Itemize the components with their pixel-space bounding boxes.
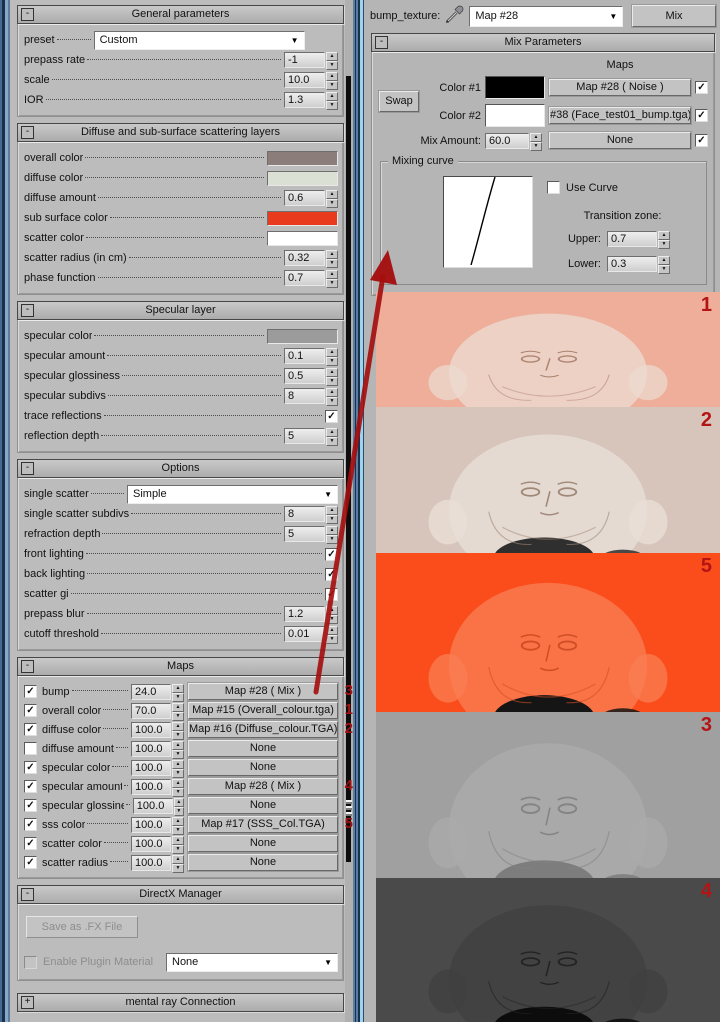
dropdown-value: Custom	[100, 34, 288, 46]
map-slot-row: ✓specular glossiness100.0▲▼None	[24, 796, 338, 815]
rollout-options: -Optionssingle scatterSimple▼single scat…	[17, 459, 344, 651]
color1-map-enable-checkbox[interactable]: ✓	[695, 81, 708, 94]
value-spinner[interactable]: ▲▼	[326, 72, 338, 88]
checkmark-icon: ✓	[26, 819, 34, 830]
value-field[interactable]: 8	[284, 388, 325, 404]
value-field[interactable]: 0.6	[284, 190, 325, 206]
eyedropper-icon[interactable]	[445, 5, 464, 27]
annotation-number: 2	[345, 720, 353, 737]
dotted-leader	[72, 689, 128, 691]
rollout-scrollbar-thumb[interactable]	[346, 76, 351, 862]
spinner-up-button[interactable]: ▲	[326, 270, 338, 279]
mixing-curve-group: Mixing curve Use Curve Transition zone:	[380, 161, 707, 285]
texture-annotation-number: 5	[701, 555, 712, 578]
checkmark-icon: ✓	[26, 857, 34, 868]
texture-annotation-number: 2	[701, 409, 712, 432]
spinner-down-button[interactable]: ▼	[172, 864, 184, 873]
mix-amount-label: Mix Amount:	[379, 135, 481, 147]
dotted-leader	[46, 98, 281, 100]
dotted-leader	[52, 78, 281, 80]
parameter-label: specular amount	[24, 350, 105, 362]
value-spinner[interactable]: ▲▼	[172, 684, 184, 700]
spinner-up-button[interactable]: ▲	[326, 250, 338, 259]
lower-spinner[interactable]: ▲▼	[658, 256, 670, 272]
dotted-leader	[116, 746, 128, 748]
dotted-leader	[126, 803, 130, 805]
value-spinner[interactable]: ▲▼	[172, 855, 184, 871]
value-spinner[interactable]: ▲▼	[172, 817, 184, 833]
spinner-down-button[interactable]: ▼	[326, 535, 338, 544]
value-spinner[interactable]: ▲▼	[326, 52, 338, 68]
color-swatch[interactable]	[267, 231, 338, 246]
color2-map-enable-checkbox[interactable]: ✓	[695, 109, 708, 122]
mix-amount-map-enable-checkbox[interactable]: ✓	[695, 134, 708, 147]
parameter-row: refraction depth5▲▼	[24, 524, 338, 544]
value-field[interactable]: -1	[284, 52, 325, 68]
map-amount-field[interactable]: 100.0	[131, 779, 171, 795]
lower-label: Lower:	[559, 258, 601, 270]
map-type-button[interactable]: Mix	[632, 5, 716, 27]
parameter-label: prepass blur	[24, 608, 85, 620]
enable-plugin-material-checkbox[interactable]	[24, 956, 37, 969]
spinner-down-button[interactable]: ▼	[326, 199, 338, 208]
parameter-row: scatter color	[24, 228, 338, 248]
dotted-leader	[104, 841, 128, 843]
map-button[interactable]: Map #28 ( Mix )	[188, 683, 338, 700]
map-enable-checkbox[interactable]: ✓	[24, 685, 37, 698]
collapse-icon[interactable]: -	[375, 36, 388, 49]
color2-map-button[interactable]: #38 (Face_test01_bump.tga)	[549, 107, 691, 124]
color2-swatch[interactable]	[485, 104, 545, 127]
parameter-label: phase function	[24, 272, 96, 284]
spinner-up-button[interactable]: ▲	[326, 348, 338, 357]
spinner-down-button[interactable]: ▼	[326, 615, 338, 624]
rollout-header[interactable]: -Maps	[17, 657, 344, 676]
dotted-leader	[131, 512, 281, 514]
checkmark-icon: ✓	[26, 705, 34, 716]
dotted-leader	[98, 276, 281, 278]
spinner-up-button[interactable]: ▲	[326, 190, 338, 199]
rollout-title: General parameters	[132, 8, 230, 20]
swap-colors-button[interactable]: Swap	[379, 91, 419, 112]
rollout-mix-parameters: - Mix Parameters Maps Swap Color #1 Map …	[371, 33, 715, 296]
value-field[interactable]: 0.32	[284, 250, 325, 266]
map-slot-label: diffuse amount	[42, 743, 114, 755]
map-button[interactable]: None	[188, 797, 338, 814]
spinner-up-button[interactable]: ▲	[530, 133, 542, 142]
mix-amount-spinner[interactable]: ▲▼	[530, 133, 542, 149]
map-amount-field[interactable]: 100.0	[131, 722, 171, 738]
rollout-header-directx[interactable]: - DirectX Manager	[17, 885, 344, 904]
map-enable-checkbox[interactable]	[24, 742, 37, 755]
spinner-up-button[interactable]: ▲	[326, 506, 338, 515]
spinner-up-button[interactable]: ▲	[172, 855, 184, 864]
maps-column-header: Maps	[549, 59, 691, 71]
dotted-leader	[103, 708, 128, 710]
map-button[interactable]: None	[188, 759, 338, 776]
spinner-up-button[interactable]: ▲	[172, 703, 184, 712]
mix-amount-control: 60.0 ▲▼	[485, 133, 545, 149]
spinner-up-button[interactable]: ▲	[326, 428, 338, 437]
color1-swatch[interactable]	[485, 76, 545, 99]
map-enable-checkbox[interactable]: ✓	[24, 761, 37, 774]
value-spinner[interactable]: ▲▼	[172, 779, 184, 795]
parameter-row: specular color	[24, 326, 338, 346]
spinner-down-button[interactable]: ▼	[658, 240, 670, 249]
spinner-down-button[interactable]: ▼	[658, 265, 670, 274]
parameter-sections: -General parameterspresetCustom▼prepass …	[17, 5, 344, 879]
spinner-up-button[interactable]: ▲	[326, 388, 338, 397]
value-spinner[interactable]: ▲▼	[172, 703, 184, 719]
parameter-dropdown[interactable]: Custom▼	[94, 31, 305, 50]
parameter-label: single scatter subdivs	[24, 508, 129, 520]
spinner-up-button[interactable]: ▲	[174, 798, 184, 807]
spinner-up-button[interactable]: ▲	[326, 72, 338, 81]
spinner-up-button[interactable]: ▲	[172, 760, 184, 769]
value-field[interactable]: 0.7	[284, 270, 325, 286]
parameter-row: overall color	[24, 148, 338, 168]
rollout-general-parameters: -General parameterspresetCustom▼prepass …	[17, 5, 344, 117]
spinner-up-button[interactable]: ▲	[172, 817, 184, 826]
texture-preview-stack: 12534	[376, 292, 720, 1022]
checkmark-icon: ✓	[327, 549, 335, 560]
color-swatch[interactable]	[267, 329, 338, 344]
value-spinner[interactable]: ▲▼	[326, 270, 338, 286]
value-field[interactable]: 10.0	[284, 72, 325, 88]
map-enable-checkbox[interactable]: ✓	[24, 723, 37, 736]
value-spinner[interactable]: ▲▼	[326, 428, 338, 444]
value-field[interactable]: 0.5	[284, 368, 325, 384]
texture-annotation-number: 1	[701, 294, 712, 317]
rollout-diffuse-and-sub-surface-scattering-layers: -Diffuse and sub-surface scattering laye…	[17, 123, 344, 295]
collapse-icon[interactable]: -	[21, 462, 34, 475]
dotted-leader	[94, 334, 264, 336]
chevron-down-icon: ▼	[321, 958, 335, 967]
spinner-up-button[interactable]: ▲	[658, 231, 670, 240]
parameter-checkbox[interactable]: ✓	[325, 548, 338, 561]
parameter-label: reflection depth	[24, 430, 99, 442]
value-field[interactable]: 5	[284, 526, 325, 542]
mix-maps-grid: Maps Swap Color #1 Map #28 ( Noise ) ✓ C…	[378, 58, 709, 149]
upper-field[interactable]: 0.7	[607, 231, 657, 247]
use-curve-checkbox[interactable]	[547, 181, 560, 194]
map-enable-checkbox[interactable]: ✓	[24, 818, 37, 831]
parameter-label: overall color	[24, 152, 83, 164]
chevron-down-icon: ▼	[321, 490, 335, 499]
parameter-checkbox[interactable]: ✓	[325, 588, 338, 601]
spinner-down-button[interactable]: ▼	[530, 142, 542, 151]
parameter-row: IOR1.3▲▼	[24, 90, 338, 110]
parameter-label: scatter gi	[24, 588, 69, 600]
checkmark-icon: ✓	[327, 411, 335, 422]
parameter-row: single scatter subdivs8▲▼	[24, 504, 338, 524]
dotted-leader	[98, 196, 281, 198]
spinner-down-button[interactable]: ▼	[326, 61, 338, 70]
spinner-up-button[interactable]: ▲	[326, 368, 338, 377]
value-spinner[interactable]: ▲▼	[326, 506, 338, 522]
value-field[interactable]: 8	[284, 506, 325, 522]
map-slot-label: specular color	[42, 762, 110, 774]
map-amount-field[interactable]: 100.0	[131, 760, 171, 776]
plugin-material-dropdown[interactable]: None ▼	[166, 953, 338, 972]
parameter-row: reflection depth5▲▼	[24, 426, 338, 446]
dotted-leader	[86, 236, 264, 238]
dotted-leader	[103, 727, 128, 729]
panel-divider	[356, 0, 366, 1022]
map-editor-panel: bump_texture: Map #28 ▼ Mix - Mix Parame…	[356, 0, 720, 1022]
spinner-up-button[interactable]: ▲	[658, 256, 670, 265]
map-enable-checkbox[interactable]: ✓	[24, 799, 37, 812]
rollout-title: mental ray Connection	[125, 996, 235, 1008]
parameter-label: single scatter	[24, 488, 89, 500]
value-spinner[interactable]: ▲▼	[326, 368, 338, 384]
rollout-body: presetCustom▼prepass rate-1▲▼scale10.0▲▼…	[17, 24, 344, 117]
spinner-down-button[interactable]: ▼	[326, 101, 338, 110]
expand-icon[interactable]: +	[21, 996, 34, 1009]
spinner-up-button[interactable]: ▲	[172, 684, 184, 693]
checkmark-icon: ✓	[327, 569, 335, 580]
parameter-label: front lighting	[24, 548, 84, 560]
texture-annotation-number: 3	[701, 714, 712, 737]
texture-preview: 3	[376, 712, 720, 878]
current-map-dropdown[interactable]: Map #28 ▼	[469, 6, 623, 27]
rollout-mental-ray: + mental ray Connection	[17, 993, 344, 1012]
value-field[interactable]: 1.2	[284, 606, 325, 622]
checkmark-icon: ✓	[26, 724, 34, 735]
parameter-label: specular color	[24, 330, 92, 342]
upper-label: Upper:	[559, 233, 601, 245]
parameter-checkbox[interactable]: ✓	[325, 410, 338, 423]
parameter-row: single scatterSimple▼	[24, 484, 338, 504]
parameter-dropdown[interactable]: Simple▼	[127, 485, 338, 504]
rollout-header-mix-parameters[interactable]: - Mix Parameters	[371, 33, 715, 52]
dotted-leader	[87, 822, 128, 824]
use-curve-label: Use Curve	[566, 182, 618, 194]
value-field[interactable]: 1.3	[284, 92, 325, 108]
map-slot-row: ✓bump24.0▲▼Map #28 ( Mix )3	[24, 682, 338, 701]
rollout-header[interactable]: -Specular layer	[17, 301, 344, 320]
map-amount-field[interactable]: 100.0	[133, 798, 173, 814]
dotted-leader	[122, 374, 281, 376]
spinner-down-button[interactable]: ▼	[326, 515, 338, 524]
value-field[interactable]: 5	[284, 428, 325, 444]
map-slot-label: scatter radius	[42, 857, 108, 869]
map-amount-field[interactable]: 24.0	[131, 684, 171, 700]
dropdown-value: Simple	[133, 488, 321, 500]
spinner-up-button[interactable]: ▲	[326, 626, 338, 635]
dotted-leader	[85, 176, 264, 178]
parameter-label: back lighting	[24, 568, 85, 580]
rollout-body: overall colordiffuse colordiffuse amount…	[17, 142, 344, 295]
spinner-up-button[interactable]: ▲	[326, 92, 338, 101]
annotation-number: 1	[345, 701, 353, 718]
spinner-down-button[interactable]: ▼	[326, 81, 338, 90]
upper-spinner[interactable]: ▲▼	[658, 231, 670, 247]
spinner-up-button[interactable]: ▲	[172, 722, 184, 731]
checkmark-icon: ✓	[327, 589, 335, 600]
value-spinner[interactable]: ▲▼	[326, 92, 338, 108]
value-spinner[interactable]: ▲▼	[326, 190, 338, 206]
collapse-icon[interactable]: -	[21, 304, 34, 317]
map-slot-label: bump_texture:	[370, 10, 440, 22]
value-spinner[interactable]: ▲▼	[172, 722, 184, 738]
enable-plugin-material-label: Enable Plugin Material	[43, 956, 153, 968]
collapse-icon[interactable]: -	[21, 126, 34, 139]
checkmark-icon: ✓	[26, 781, 34, 792]
dotted-leader	[87, 58, 281, 60]
value-spinner[interactable]: ▲▼	[326, 388, 338, 404]
collapse-icon[interactable]: -	[21, 8, 34, 21]
dotted-leader	[108, 394, 281, 396]
map-enable-checkbox[interactable]: ✓	[24, 780, 37, 793]
mix-amount-field[interactable]: 60.0	[485, 133, 529, 149]
parameter-row: scatter gi✓	[24, 584, 338, 604]
rollout-title: Diffuse and sub-surface scattering layer…	[81, 126, 280, 138]
spinner-down-button[interactable]: ▼	[326, 279, 338, 288]
dotted-leader	[110, 860, 128, 862]
parameter-label: refraction depth	[24, 528, 100, 540]
parameter-label: specular subdivs	[24, 390, 106, 402]
map-button[interactable]: None	[188, 854, 338, 871]
save-fx-file-button[interactable]: Save as .FX File	[26, 916, 138, 938]
parameter-row: prepass blur1.2▲▼	[24, 604, 338, 624]
material-rollouts-panel: -General parameterspresetCustom▼prepass …	[17, 5, 344, 1018]
map-slot-row: ✓diffuse color100.0▲▼Map #16 (Diffuse_co…	[24, 720, 338, 739]
map-slot-label: scatter color	[42, 838, 102, 850]
map-button[interactable]: Map #15 (Overall_colour.tga)	[188, 702, 338, 719]
map-slot-label: overall color	[42, 705, 101, 717]
value-spinner[interactable]: ▲▼	[326, 348, 338, 364]
checkmark-icon: ✓	[26, 838, 34, 849]
map-slot-label: bump	[42, 686, 70, 698]
transition-zone-label: Transition zone:	[547, 210, 698, 222]
map-amount-field[interactable]: 100.0	[131, 817, 171, 833]
map-enable-checkbox[interactable]: ✓	[24, 837, 37, 850]
value-spinner[interactable]: ▲▼	[174, 798, 184, 814]
spinner-up-button[interactable]: ▲	[172, 836, 184, 845]
rollout-title: Specular layer	[145, 304, 215, 316]
collapse-icon[interactable]: -	[21, 660, 34, 673]
checkmark-icon: ✓	[26, 762, 34, 773]
parameter-row: diffuse color	[24, 168, 338, 188]
rollout-header[interactable]: -Options	[17, 459, 344, 478]
map-slot-label: sss color	[42, 819, 85, 831]
annotation-number: 3	[345, 682, 353, 699]
map-slot-row: ✓overall color70.0▲▼Map #15 (Overall_col…	[24, 701, 338, 720]
map-button[interactable]: None	[188, 835, 338, 852]
value-field[interactable]: 0.01	[284, 626, 325, 642]
rollout-header[interactable]: -General parameters	[17, 5, 344, 24]
parameter-row: specular amount0.1▲▼	[24, 346, 338, 366]
map-amount-field[interactable]: 100.0	[131, 855, 171, 871]
parameter-label: diffuse amount	[24, 192, 96, 204]
map-amount-field[interactable]: 70.0	[131, 703, 171, 719]
value-spinner[interactable]: ▲▼	[172, 836, 184, 852]
dotted-leader	[110, 216, 264, 218]
value-spinner[interactable]: ▲▼	[326, 250, 338, 266]
spinner-down-button[interactable]: ▼	[326, 437, 338, 446]
rollout-body-directx: Save as .FX File Enable Plugin Material …	[17, 904, 344, 981]
parameter-label: IOR	[24, 94, 44, 106]
dotted-leader	[85, 156, 264, 158]
spinner-up-button[interactable]: ▲	[326, 526, 338, 535]
parameter-row: front lighting✓	[24, 544, 338, 564]
value-spinner[interactable]: ▲▼	[326, 526, 338, 542]
mix-amount-map-button[interactable]: None	[549, 132, 691, 149]
rollout-body-mix-parameters: Maps Swap Color #1 Map #28 ( Noise ) ✓ C…	[371, 52, 715, 296]
map-slot-label: specular amount	[42, 781, 122, 793]
spinner-up-button[interactable]: ▲	[172, 779, 184, 788]
map-slot-row: ✓specular color100.0▲▼None	[24, 758, 338, 777]
rollout-header-mental-ray[interactable]: + mental ray Connection	[17, 993, 344, 1012]
spinner-up-button[interactable]: ▲	[172, 741, 184, 750]
spinner-down-button[interactable]: ▼	[326, 397, 338, 406]
spinner-down-button[interactable]: ▼	[326, 635, 338, 644]
parameter-checkbox[interactable]: ✓	[325, 568, 338, 581]
value-spinner[interactable]: ▲▼	[326, 626, 338, 642]
rollout-directx-manager: - DirectX Manager Save as .FX File Enabl…	[17, 885, 344, 981]
rollout-title: Maps	[167, 660, 194, 672]
parameter-label: scatter radius (in cm)	[24, 252, 127, 264]
chevron-down-icon: ▼	[606, 12, 620, 21]
value-spinner[interactable]: ▲▼	[326, 606, 338, 622]
mixing-curve-controls: Use Curve Transition zone: Upper: 0.7 ▲▼…	[547, 176, 698, 272]
dotted-leader	[129, 256, 281, 258]
map-button[interactable]: Map #16 (Diffuse_colour.TGA)	[188, 721, 338, 738]
value-spinner[interactable]: ▲▼	[172, 741, 184, 757]
parameter-label: scatter color	[24, 232, 84, 244]
spinner-down-button[interactable]: ▼	[326, 357, 338, 366]
spinner-down-button[interactable]: ▼	[326, 377, 338, 386]
map-amount-field[interactable]: 100.0	[131, 741, 171, 757]
parameter-row: phase function0.7▲▼	[24, 268, 338, 288]
value-spinner[interactable]: ▲▼	[172, 760, 184, 776]
color-swatch[interactable]	[267, 171, 338, 186]
spinner-up-button[interactable]: ▲	[326, 52, 338, 61]
collapse-icon[interactable]: -	[21, 888, 34, 901]
rollout-body: ✓bump24.0▲▼Map #28 ( Mix )3✓overall colo…	[17, 676, 344, 879]
map-navigation-bar: bump_texture: Map #28 ▼ Mix	[366, 0, 720, 30]
rollout-maps: -Maps✓bump24.0▲▼Map #28 ( Mix )3✓overall…	[17, 657, 344, 879]
parameter-row: scatter radius (in cm)0.32▲▼	[24, 248, 338, 268]
color1-map-button[interactable]: Map #28 ( Noise )	[549, 79, 691, 96]
map-button[interactable]: Map #28 ( Mix )	[188, 778, 338, 795]
map-enable-checkbox[interactable]: ✓	[24, 704, 37, 717]
dotted-leader	[104, 414, 322, 416]
lower-field[interactable]: 0.3	[607, 256, 657, 272]
spinner-down-button[interactable]: ▼	[326, 259, 338, 268]
dotted-leader	[87, 612, 281, 614]
spinner-up-button[interactable]: ▲	[326, 606, 338, 615]
rollout-header[interactable]: -Diffuse and sub-surface scattering laye…	[17, 123, 344, 142]
texture-preview: 4	[376, 878, 720, 1022]
map-amount-field[interactable]: 100.0	[131, 836, 171, 852]
parameter-row: diffuse amount0.6▲▼	[24, 188, 338, 208]
color1-label: Color #1	[425, 82, 481, 94]
rollout-body: single scatterSimple▼single scatter subd…	[17, 478, 344, 651]
color-swatch[interactable]	[267, 151, 338, 166]
value-field[interactable]: 0.1	[284, 348, 325, 364]
annotation-number: 4	[345, 777, 353, 794]
map-button[interactable]: None	[188, 740, 338, 757]
dropdown-value: Map #28	[475, 10, 606, 22]
dotted-leader	[107, 354, 281, 356]
map-button[interactable]: Map #17 (SSS_Col.TGA)	[188, 816, 338, 833]
checkmark-icon: ✓	[26, 686, 34, 697]
mixing-curve-label: Mixing curve	[388, 155, 458, 167]
color-swatch[interactable]	[267, 211, 338, 226]
map-enable-checkbox[interactable]: ✓	[24, 856, 37, 869]
